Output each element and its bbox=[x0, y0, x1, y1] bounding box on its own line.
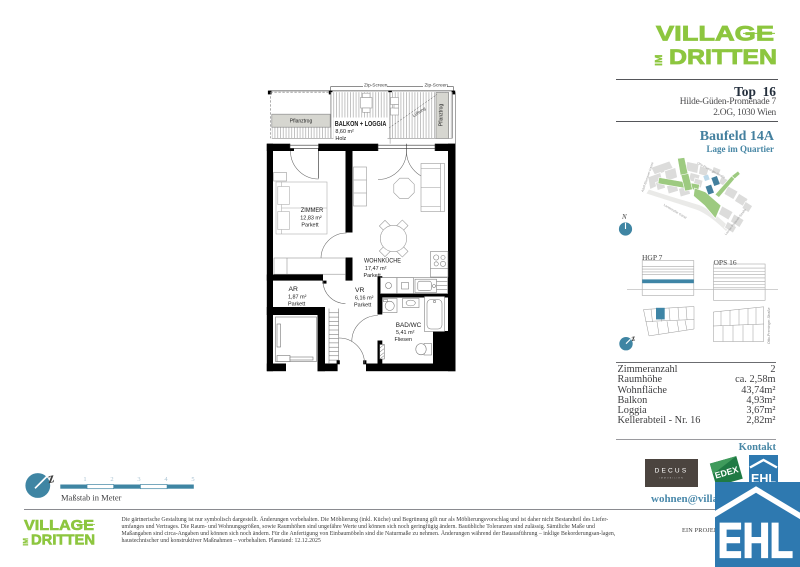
svg-text:DRITTEN: DRITTEN bbox=[669, 46, 777, 68]
svg-text:Zip-Screen: Zip-Screen bbox=[425, 83, 449, 89]
svg-text:IM: IM bbox=[23, 538, 30, 546]
svg-text:OPS 16: OPS 16 bbox=[714, 258, 737, 267]
svg-text:Fliesen: Fliesen bbox=[395, 337, 413, 343]
svg-text:1,87 m²: 1,87 m² bbox=[288, 295, 307, 301]
svg-text:Holz: Holz bbox=[335, 136, 346, 142]
svg-text:2: 2 bbox=[110, 476, 113, 483]
svg-text:Zip-Screen: Zip-Screen bbox=[364, 83, 388, 89]
svg-text:Parkett: Parkett bbox=[288, 302, 306, 308]
svg-text:5: 5 bbox=[191, 476, 194, 483]
svg-text:6,16 m²: 6,16 m² bbox=[355, 296, 374, 302]
svg-text:Maßstab in Meter: Maßstab in Meter bbox=[61, 493, 122, 503]
svg-text:Pflanztrog: Pflanztrog bbox=[290, 119, 313, 125]
svg-text:Otto-Preminger-Straße: Otto-Preminger-Straße bbox=[767, 307, 771, 344]
svg-text:3: 3 bbox=[137, 476, 140, 483]
svg-text:1: 1 bbox=[83, 476, 86, 483]
svg-text:Parkett: Parkett bbox=[301, 223, 319, 229]
svg-text:4: 4 bbox=[164, 476, 168, 483]
svg-text:VR: VR bbox=[355, 287, 365, 294]
svg-text:IM: IM bbox=[654, 55, 665, 66]
svg-text:DECUS: DECUS bbox=[655, 468, 689, 475]
svg-text:5,41 m²: 5,41 m² bbox=[396, 330, 415, 336]
svg-text:N: N bbox=[621, 213, 627, 221]
svg-text:BALKON + LOGGIA: BALKON + LOGGIA bbox=[335, 121, 387, 128]
svg-text:17,47 m²: 17,47 m² bbox=[365, 266, 387, 272]
svg-text:BAD/WC: BAD/WC bbox=[396, 322, 422, 329]
svg-text:Parkett: Parkett bbox=[354, 303, 372, 309]
svg-text:8,60 m²: 8,60 m² bbox=[335, 129, 354, 135]
svg-text:AR: AR bbox=[289, 286, 299, 293]
svg-text:ZIMMER: ZIMMER bbox=[301, 207, 324, 214]
svg-text:Parkett: Parkett bbox=[364, 273, 382, 279]
svg-text:12,83 m²: 12,83 m² bbox=[300, 216, 322, 222]
svg-text:DRITTEN: DRITTEN bbox=[31, 531, 95, 548]
svg-text:WOHNKÜCHE: WOHNKÜCHE bbox=[364, 257, 401, 265]
svg-text:Pflanztrog: Pflanztrog bbox=[439, 104, 445, 127]
svg-text:IMMOBILIEN: IMMOBILIEN bbox=[659, 478, 684, 480]
